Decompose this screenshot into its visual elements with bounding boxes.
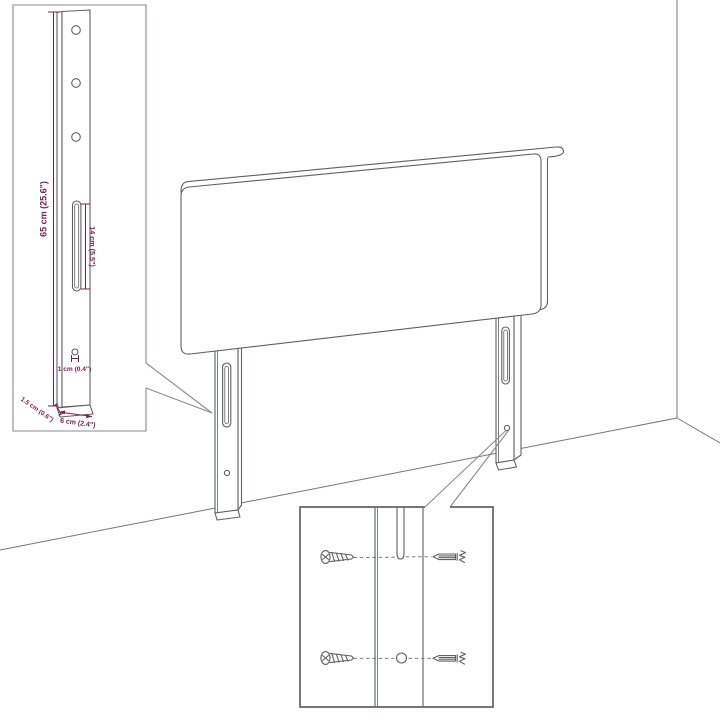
headboard-right-leg <box>496 297 521 471</box>
dimension-label-hole: 1 cm (0.4") <box>58 366 92 373</box>
dimension-label-slot: 14 cm (5.5") <box>88 226 97 267</box>
pointer-line-lower <box>146 388 212 413</box>
diagram-canvas: 65 cm (25.6") 14 cm (5.5") 1 cm (0.4") 1… <box>0 0 720 720</box>
panel-front-face <box>181 154 541 354</box>
left-leg-front-face <box>215 333 238 513</box>
panel-right-edge <box>541 158 548 310</box>
floor-line-right <box>677 418 720 443</box>
pointer-line-left <box>425 431 506 508</box>
dimension-label-height: 65 cm (25.6") <box>39 181 49 237</box>
headboard-diagram: 65 cm (25.6") 14 cm (5.5") 1 cm (0.4") 1… <box>0 0 720 720</box>
screw-detail-callout <box>300 507 493 707</box>
headboard-left-leg <box>215 332 242 520</box>
bracket-detail-callout: 65 cm (25.6") 14 cm (5.5") 1 cm (0.4") 1… <box>13 5 146 431</box>
right-leg-side-face <box>514 297 521 461</box>
bracket-callout-pointer <box>146 363 212 413</box>
pointer-line-upper <box>146 363 212 413</box>
bracket-side-face <box>57 12 62 409</box>
